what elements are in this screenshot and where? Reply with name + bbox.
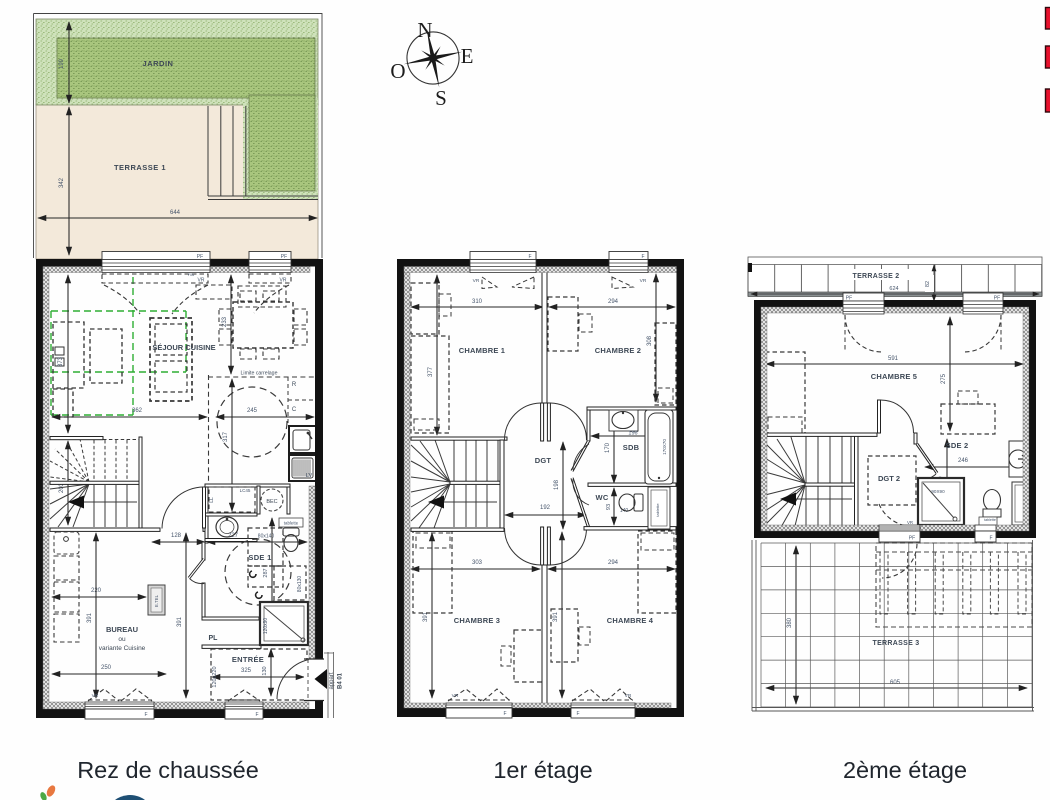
svg-text:391: 391 xyxy=(553,611,559,622)
svg-text:90X90: 90X90 xyxy=(931,489,945,494)
svg-text:ENTRÉE: ENTRÉE xyxy=(232,655,264,664)
svg-text:377: 377 xyxy=(428,366,434,377)
svg-text:CHAMBRE 5: CHAMBRE 5 xyxy=(871,372,917,381)
svg-text:CHAMBRE 3: CHAMBRE 3 xyxy=(454,616,500,625)
svg-text:C: C xyxy=(292,407,297,413)
svg-text:PF: PF xyxy=(846,296,852,302)
svg-text:F: F xyxy=(528,254,531,260)
svg-text:BUREAU: BUREAU xyxy=(106,625,138,634)
svg-text:TERRASSE 3: TERRASSE 3 xyxy=(873,640,920,647)
svg-text:DGT 2: DGT 2 xyxy=(878,474,900,483)
svg-text:PF: PF xyxy=(281,254,287,260)
svg-text:VR: VR xyxy=(198,278,205,284)
svg-text:S: S xyxy=(435,86,447,110)
svg-text:DGT: DGT xyxy=(535,456,552,465)
svg-text:N: N xyxy=(417,18,432,42)
svg-text:310: 310 xyxy=(472,299,483,305)
svg-text:2ème étage: 2ème étage xyxy=(843,757,967,783)
svg-text:128: 128 xyxy=(171,533,182,539)
svg-text:F: F xyxy=(641,254,644,260)
svg-text:O: O xyxy=(390,59,405,83)
svg-text:362: 362 xyxy=(132,408,143,414)
svg-text:SDB: SDB xyxy=(623,443,640,452)
svg-text:275: 275 xyxy=(941,373,947,384)
svg-text:F: F xyxy=(144,712,147,718)
svg-text:308: 308 xyxy=(647,335,653,346)
svg-text:CHAMBRE 4: CHAMBRE 4 xyxy=(607,616,654,625)
svg-text:130: 130 xyxy=(262,666,268,675)
svg-text:294: 294 xyxy=(608,560,619,566)
svg-text:SDE 2: SDE 2 xyxy=(946,441,969,450)
svg-text:variante Cuisine: variante Cuisine xyxy=(99,645,146,652)
svg-text:196: 196 xyxy=(628,431,637,437)
svg-text:199: 199 xyxy=(59,58,65,69)
svg-text:120x220: 120x220 xyxy=(212,666,218,687)
svg-text:F: F xyxy=(576,711,579,717)
svg-text:294: 294 xyxy=(608,299,619,305)
svg-text:E: E xyxy=(461,44,474,68)
svg-text:VR: VR xyxy=(92,693,99,699)
svg-text:ou: ou xyxy=(118,636,126,643)
svg-text:tablette: tablette xyxy=(655,503,660,517)
svg-text:120x90: 120x90 xyxy=(263,618,269,635)
svg-text:PF: PF xyxy=(994,296,1000,302)
svg-text:VR: VR xyxy=(473,278,480,284)
svg-text:80x130: 80x130 xyxy=(297,576,303,593)
svg-text:BEC: BEC xyxy=(266,499,277,505)
svg-text:1er étage: 1er étage xyxy=(493,757,592,783)
svg-text:LV: LV xyxy=(306,473,313,479)
svg-text:Rez de chaussée: Rez de chaussée xyxy=(77,757,259,783)
svg-text:VR: VR xyxy=(280,278,287,284)
svg-text:SÉJOUR CUISINE: SÉJOUR CUISINE xyxy=(152,343,215,352)
svg-text:317: 317 xyxy=(223,431,229,442)
svg-text:CHAMBRE 1: CHAMBRE 1 xyxy=(459,346,505,355)
svg-text:appart: appart xyxy=(329,672,335,689)
svg-text:Limite carrelage: Limite carrelage xyxy=(241,371,278,377)
svg-text:624: 624 xyxy=(889,286,898,292)
svg-text:LC45: LC45 xyxy=(240,488,251,493)
svg-text:VR: VR xyxy=(640,278,647,284)
svg-text:591: 591 xyxy=(888,356,899,362)
svg-text:391: 391 xyxy=(177,616,183,627)
svg-text:TERRASSE 2: TERRASSE 2 xyxy=(853,273,900,280)
svg-text:VR: VR xyxy=(625,693,632,699)
svg-text:198: 198 xyxy=(554,479,560,490)
svg-text:170X70: 170X70 xyxy=(662,439,667,455)
svg-text:373: 373 xyxy=(58,356,64,367)
svg-text:SDE 1: SDE 1 xyxy=(248,553,271,562)
svg-text:233: 233 xyxy=(222,316,228,327)
svg-text:PF: PF xyxy=(909,536,915,542)
svg-text:246: 246 xyxy=(958,458,969,464)
svg-text:93: 93 xyxy=(606,504,612,510)
svg-text:PL: PL xyxy=(209,635,219,642)
svg-text:303: 303 xyxy=(472,560,483,566)
svg-text:WC: WC xyxy=(596,493,609,502)
svg-text:170: 170 xyxy=(605,442,611,453)
svg-text:325: 325 xyxy=(241,668,252,674)
svg-text:F06: F06 xyxy=(188,273,195,277)
svg-text:PF: PF xyxy=(197,254,203,260)
svg-text:tablette: tablette xyxy=(284,521,299,526)
svg-text:VR: VR xyxy=(907,520,913,525)
svg-text:TERRASSE 1: TERRASSE 1 xyxy=(114,163,166,172)
svg-text:VR: VR xyxy=(452,693,459,699)
svg-text:250: 250 xyxy=(101,665,112,671)
svg-text:342: 342 xyxy=(59,177,65,188)
svg-text:380: 380 xyxy=(787,617,793,628)
svg-text:287: 287 xyxy=(263,568,269,577)
svg-text:E.TEL: E.TEL xyxy=(154,594,159,607)
svg-text:F: F xyxy=(255,712,258,718)
svg-text:192: 192 xyxy=(540,505,551,511)
svg-text:644: 644 xyxy=(170,210,181,216)
svg-text:605: 605 xyxy=(890,680,901,686)
svg-text:LL: LL xyxy=(209,497,215,503)
svg-text:82: 82 xyxy=(925,281,931,287)
svg-text:CHAMBRE 2: CHAMBRE 2 xyxy=(595,346,641,355)
svg-text:F: F xyxy=(503,711,506,717)
svg-text:tablette: tablette xyxy=(984,518,996,522)
svg-text:F: F xyxy=(989,536,992,542)
svg-text:JARDIN: JARDIN xyxy=(143,59,174,68)
svg-text:R: R xyxy=(292,382,297,388)
svg-text:B4 01: B4 01 xyxy=(338,672,344,689)
svg-text:245: 245 xyxy=(247,408,258,414)
svg-text:391: 391 xyxy=(87,612,93,623)
